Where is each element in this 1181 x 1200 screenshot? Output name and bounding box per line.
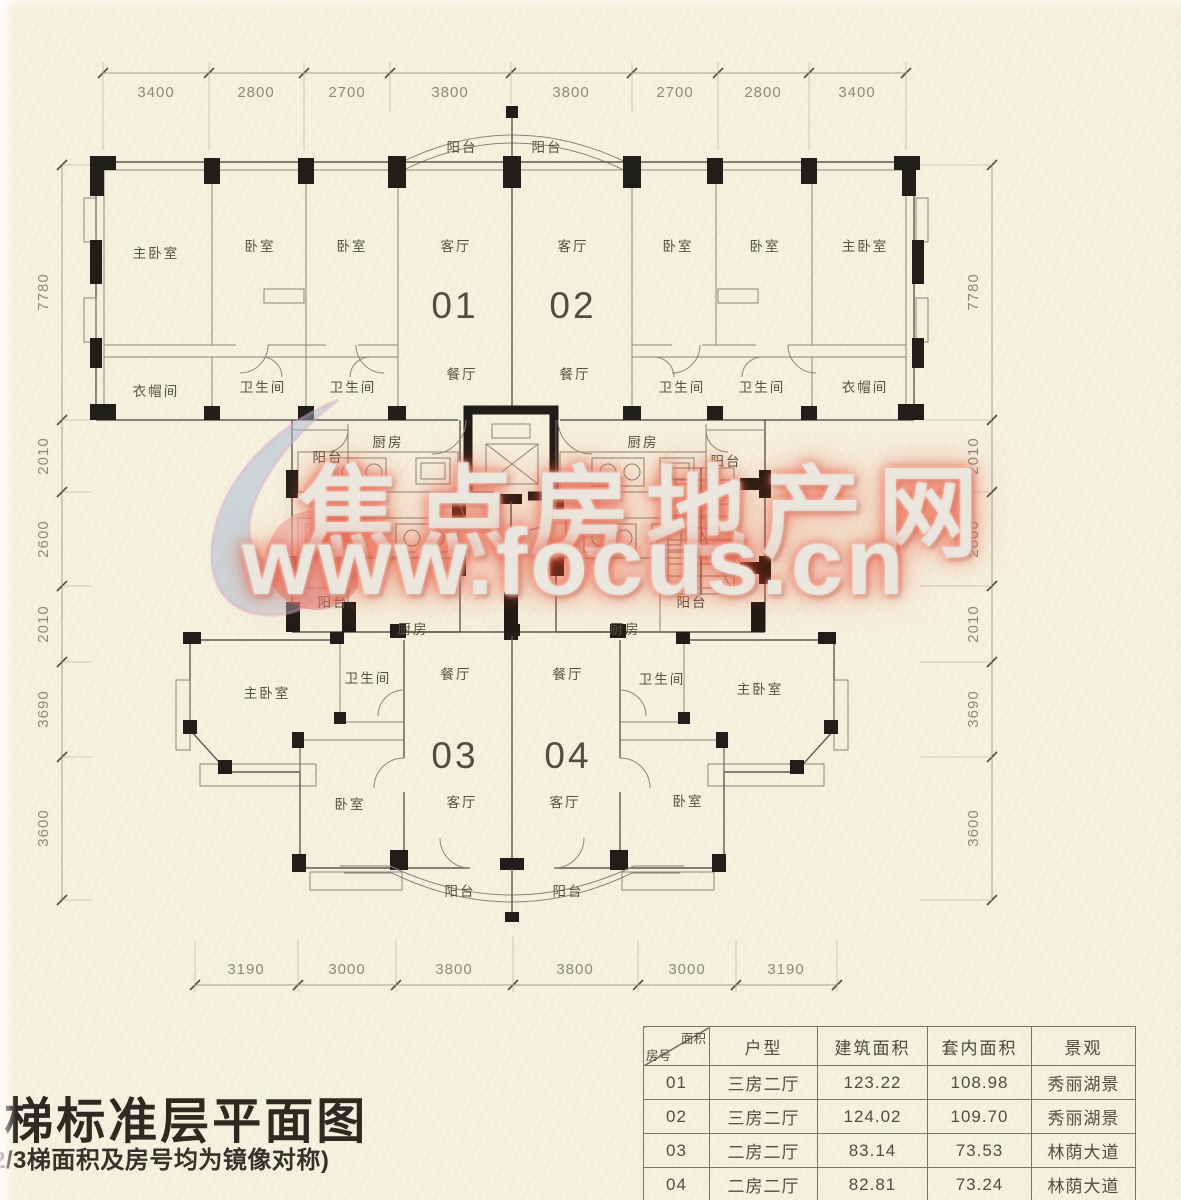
unit-number-04: 04: [544, 735, 591, 776]
label-u03-dining: 餐厅: [441, 667, 472, 682]
label-u01-living: 客厅: [441, 238, 472, 254]
col-header-type: 户型: [710, 1027, 818, 1066]
col-header-inner-area: 套内面积: [928, 1027, 1032, 1066]
dim-bottom-1: 3000: [328, 961, 365, 978]
cell-type: 三房二厅: [710, 1066, 818, 1100]
dim-left-1: 2010: [35, 437, 52, 474]
unit-number-01: 01: [431, 285, 478, 326]
label-u01-bedroom-1: 卧室: [245, 238, 276, 254]
label-u01-master-bedroom: 主卧室: [133, 245, 180, 261]
cell-view: 林荫大道: [1032, 1168, 1136, 1200]
unit-number-03: 03: [431, 735, 478, 776]
label-u04-bedroom: 卧室: [673, 793, 704, 809]
dim-top-5: 2700: [656, 84, 693, 101]
dim-left-2: 2600: [35, 520, 52, 557]
table-row: 02 三房二厅 124.02 109.70 秀丽湖景: [644, 1100, 1136, 1134]
dim-top-1: 2800: [237, 84, 274, 101]
dim-bottom-3: 3800: [556, 961, 593, 978]
unit-spec-table: 面积 房号 户型 建筑面积 套内面积 景观 01 三房二厅 123.22 108…: [643, 1026, 1136, 1200]
cell-type: 三房二厅: [710, 1100, 818, 1134]
table-row: 04 二房二厅 82.81 73.24 林荫大道: [644, 1168, 1136, 1200]
scan-edge-left: [0, 0, 16, 1200]
label-u03-balcony: 阳台: [445, 884, 476, 899]
dim-right-0: 7780: [965, 273, 982, 310]
label-u02-bedroom-1: 卧室: [663, 238, 694, 254]
label-u01-dining: 餐厅: [447, 367, 478, 382]
table-row: 01 三房二厅 123.22 108.98 秀丽湖景: [644, 1066, 1136, 1100]
dim-right-3: 2010: [965, 605, 982, 642]
cell-type: 二房二厅: [710, 1134, 818, 1168]
label-u03-master-bedroom: 主卧室: [244, 685, 291, 701]
label-u04-dining: 餐厅: [553, 667, 584, 682]
dim-top-4: 3800: [552, 84, 589, 101]
dim-top-3: 3800: [431, 84, 468, 101]
upper-block-columns: [90, 156, 924, 420]
dim-chain-left: 7780 2010 2600 2010 3690 3600: [35, 160, 92, 905]
corner-label-roomno: 房号: [646, 1045, 671, 1064]
dim-chain-bottom: 3190 3000 3800 3800 3000 3190: [190, 936, 842, 992]
dim-left-3: 2010: [35, 605, 52, 642]
label-u02-bath-1: 卫生间: [659, 380, 706, 395]
label-u02-bedroom-2: 卧室: [750, 238, 781, 254]
label-u02-dining: 餐厅: [560, 367, 591, 382]
dim-top-7: 3400: [838, 84, 875, 101]
table-row: 03 二房二厅 83.14 73.53 林荫大道: [644, 1134, 1136, 1168]
corner-label-area: 面积: [681, 1028, 706, 1047]
table-corner-cell: 面积 房号: [644, 1027, 710, 1066]
dim-bottom-5: 3190: [767, 961, 804, 978]
label-u04-balcony: 阳台: [553, 884, 584, 899]
floorplan-page: 3400 2800 2700 3800 3800 2700 2800 3400 …: [0, 0, 1181, 1200]
scan-edge-top: [0, 0, 1181, 10]
label-u02-master-bedroom: 主卧室: [842, 238, 889, 254]
dim-top-2: 2700: [328, 84, 365, 101]
page-subtitle: 2/3梯面积及房号均为镜像对称): [0, 1140, 329, 1175]
lower-block-walls: [176, 632, 848, 890]
label-u04-bath: 卫生间: [639, 672, 686, 687]
watermark-text-url: www.focus.cn: [242, 508, 907, 616]
label-u04-living: 客厅: [550, 794, 581, 810]
upper-block-walls: [84, 162, 928, 420]
cell-no: 02: [644, 1100, 710, 1134]
cell-built-area: 124.02: [818, 1100, 928, 1134]
cell-view: 秀丽湖景: [1032, 1100, 1136, 1134]
cell-no: 03: [644, 1134, 710, 1168]
label-u02-cloakroom: 衣帽间: [842, 380, 889, 395]
cell-no: 01: [644, 1066, 710, 1100]
label-u02-bath-2: 卫生间: [739, 380, 786, 395]
label-u03-bedroom: 卧室: [335, 796, 366, 812]
cell-inner-area: 73.53: [928, 1134, 1032, 1168]
label-kitchen-bot-right: 厨房: [610, 622, 641, 637]
dim-bottom-4: 3000: [668, 961, 705, 978]
label-balcony-top-left: 阳台: [447, 140, 478, 155]
dim-left-0: 7780: [35, 273, 52, 310]
dim-top-0: 3400: [137, 84, 174, 101]
cell-inner-area: 73.24: [928, 1168, 1032, 1200]
dim-right-4: 3690: [965, 690, 982, 727]
label-u01-bedroom-2: 卧室: [337, 238, 368, 254]
cell-inner-area: 108.98: [928, 1066, 1032, 1100]
cell-no: 04: [644, 1168, 710, 1200]
dim-left-4: 3690: [35, 690, 52, 727]
cell-built-area: 123.22: [818, 1066, 928, 1100]
label-u02-living: 客厅: [558, 238, 589, 254]
label-balcony-top-right: 阳台: [532, 140, 563, 155]
cell-built-area: 82.81: [818, 1168, 928, 1200]
label-u03-living: 客厅: [447, 794, 478, 810]
label-kitchen-bot-left: 厨房: [398, 622, 429, 637]
cell-view: 秀丽湖景: [1032, 1066, 1136, 1100]
cell-built-area: 83.14: [818, 1134, 928, 1168]
dim-left-5: 3600: [35, 809, 52, 846]
bottom-balcony-arc: [340, 866, 684, 922]
col-header-built-area: 建筑面积: [818, 1027, 928, 1066]
col-header-view: 景观: [1032, 1027, 1136, 1066]
dim-bottom-2: 3800: [435, 961, 472, 978]
dim-right-5: 3600: [965, 809, 982, 846]
dim-chain-top: 3400 2800 2700 3800 3800 2700 2800 3400: [98, 62, 911, 150]
dim-bottom-0: 3190: [227, 961, 264, 978]
unit-number-02: 02: [549, 285, 596, 326]
table-header-row: 面积 房号 户型 建筑面积 套内面积 景观: [644, 1027, 1136, 1066]
label-u04-master-bedroom: 主卧室: [737, 681, 784, 697]
cell-inner-area: 109.70: [928, 1100, 1032, 1134]
label-u03-bath: 卫生间: [345, 671, 392, 686]
cell-view: 林荫大道: [1032, 1134, 1136, 1168]
label-u01-cloakroom: 衣帽间: [133, 384, 180, 399]
lower-block-columns: [183, 624, 838, 872]
cell-type: 二房二厅: [710, 1168, 818, 1200]
dim-top-6: 2800: [744, 84, 781, 101]
